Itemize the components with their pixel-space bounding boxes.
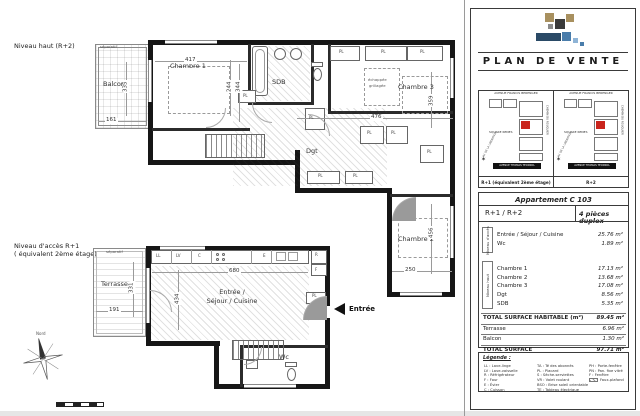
- street-label-left: AV. DE LA LIBERATION: [483, 132, 498, 159]
- wall: [148, 40, 153, 165]
- partition: [390, 194, 453, 197]
- row-area: 17.13 m²: [598, 267, 623, 273]
- window: [450, 58, 454, 98]
- dimension-label: 456: [430, 227, 436, 240]
- closet: [307, 171, 340, 184]
- sink: [274, 48, 286, 60]
- apartment-levels: R+1 / R+2: [485, 210, 522, 217]
- oven: [311, 264, 327, 276]
- room-label: SDB: [272, 79, 286, 86]
- section-label-access: Niveau d'accès: [485, 226, 490, 255]
- map-caption-r1: R+1 (équivalent 2ème étage): [479, 177, 554, 188]
- section-label-haut: Niveau haut: [485, 273, 490, 296]
- placard-label: PL: [243, 94, 248, 98]
- mini-compass-icon: ✶: [481, 157, 486, 163]
- appliance-label: R: [315, 253, 318, 257]
- table-row: Chambre 1 17.13 m²: [497, 267, 623, 273]
- title-rule-bottom: [478, 70, 628, 71]
- counter-divider: [251, 250, 252, 264]
- row-area: 13.68 m²: [598, 276, 623, 282]
- row-area: 1.89 m²: [601, 242, 623, 248]
- square-label: SQUARE RENES: [564, 131, 587, 134]
- window: [400, 292, 442, 296]
- apartment-type: 4 pièces duplex: [579, 211, 628, 224]
- table-rule: [479, 205, 628, 206]
- table-row: Chambre 3 17.08 m²: [497, 284, 623, 290]
- row-name: SDB: [497, 302, 509, 308]
- row-area: 8.56 m²: [601, 293, 623, 299]
- counter-divider: [271, 250, 272, 264]
- table-row: Entrée / Séjour / Cuisine 25.76 m²: [497, 233, 623, 239]
- section-rows-access: Entrée / Séjour / Cuisine 25.76 m² Wc 1.…: [497, 233, 623, 250]
- toilet-tank: [311, 62, 323, 67]
- site-maps-box: AVENUE FRANCIS BERENGER AV. DE LA LIBERA…: [478, 90, 629, 188]
- total-row: Balcon 1.30 m²: [481, 334, 626, 345]
- row-area: 25.76 m²: [598, 233, 623, 239]
- legend-column-3: PH : Porte-fenêtrePN : Pan. fixe vitréF …: [589, 364, 624, 383]
- map-building: [594, 137, 618, 151]
- placard-label: PL: [367, 131, 372, 135]
- street-label-left: AV. DE LA LIBERATION: [558, 132, 573, 159]
- legend-entry: BSO : Brise soleil orientable: [537, 383, 588, 388]
- room-label: Chambre 1: [170, 63, 206, 70]
- placard-label: PL: [427, 150, 432, 154]
- site-map-r1: AVENUE FRANCIS BERENGER AV. DE LA LIBERA…: [479, 91, 553, 176]
- entrance-label: Entrée: [349, 306, 375, 313]
- wall: [387, 192, 392, 294]
- table-row: Wc 1.89 m²: [497, 242, 623, 248]
- bed-outline: [402, 76, 448, 114]
- window: [450, 206, 454, 258]
- entrance-arrow-icon: [334, 303, 345, 315]
- lower-level-label-line2: ( équivalent 2ème étage): [14, 250, 97, 258]
- logo-band: [536, 33, 561, 41]
- sejour-label-line1: Entrée /: [196, 288, 268, 297]
- kitchen-sink: [276, 252, 286, 261]
- bed-outline: [168, 66, 230, 114]
- logo-square: [580, 42, 584, 46]
- row-name: Dgt: [497, 293, 507, 299]
- logo-square: [548, 24, 553, 29]
- placard-label: PL: [353, 174, 358, 178]
- fridge: [311, 250, 327, 264]
- street-label-top: AVENUE FRANCIS BERENGER: [554, 92, 628, 95]
- totals-rows: TOTAL SURFACE HABITABLE (m²) 89.45 m² Te…: [481, 313, 626, 355]
- appliance-label: LV: [176, 254, 181, 258]
- appliance-label: C: [198, 254, 201, 258]
- street-label-bottom: AVENUE THOMAS TECKNOL: [568, 163, 616, 169]
- lower-level-label: Niveau d'accès R+1 ( équivalent 2ème éta…: [14, 242, 97, 259]
- street-label-top: AVENUE FRANCIS BERENGER: [479, 92, 553, 95]
- stove-burner: [216, 258, 219, 261]
- table-row: Chambre 2 13.68 m²: [497, 276, 623, 282]
- counter-divider: [171, 250, 172, 264]
- row-name: Chambre 1: [497, 267, 527, 273]
- table-row: Dgt 8.56 m²: [497, 293, 623, 299]
- row-name: Wc: [497, 242, 505, 248]
- closet: [365, 46, 407, 61]
- placard-label: PL: [339, 50, 344, 54]
- terrace-rail: [96, 251, 143, 334]
- dimension-label: 244: [228, 81, 234, 94]
- stove-burner: [222, 258, 225, 261]
- section-label-box: Niveau d'accès: [482, 227, 493, 253]
- placard-label: PL: [381, 50, 386, 54]
- total-row: TOTAL SURFACE HABITABLE (m²) 89.45 m²: [481, 313, 626, 324]
- dimension-label: 434: [176, 293, 182, 306]
- map-building: [594, 153, 618, 161]
- stove-burner: [216, 253, 219, 256]
- total-label: TOTAL SURFACE HABITABLE (m²): [483, 316, 583, 322]
- map-captions: R+1 (équivalent 2ème étage) R+2: [479, 176, 628, 188]
- mini-compass-icon: ✶: [556, 157, 561, 163]
- placard-label: PL: [420, 50, 425, 54]
- toilet-bowl: [313, 68, 322, 81]
- street-label-bottom: AVENUE THOMAS TECKNOL: [493, 163, 541, 169]
- door-arc: [206, 108, 226, 128]
- toilet-bowl: [287, 368, 296, 381]
- compass-icon: [18, 332, 69, 386]
- placard-label: PL: [391, 131, 396, 135]
- closet: [386, 126, 408, 144]
- total-label: Terrasse: [483, 327, 506, 333]
- site-map-r2: AVENUE FRANCIS BERENGER AV. DE LA LIBERA…: [554, 91, 628, 176]
- square-label: SQUARE RENES: [489, 131, 512, 134]
- logo-square: [562, 32, 571, 41]
- appliance-label: F: [315, 268, 317, 272]
- logo-square: [573, 38, 578, 43]
- logo-square: [555, 19, 565, 29]
- placard-label: PL: [318, 174, 323, 178]
- sejour-label-line2: Séjour / Cuisine: [196, 297, 268, 306]
- closet: [420, 145, 444, 163]
- placard-label: PL: [312, 294, 317, 298]
- room-label: Dgt: [306, 148, 318, 155]
- total-value: 89.45 m²: [597, 316, 624, 322]
- total-row: Terrasse 6.96 m²: [481, 324, 626, 335]
- annotation-label: grillagée: [369, 84, 386, 88]
- closet: [345, 171, 373, 184]
- dimension-label: 417: [184, 58, 197, 64]
- title-rule-top: [478, 52, 628, 53]
- door-arc: [392, 197, 416, 221]
- dimension-label: 161: [105, 118, 118, 124]
- street-label-right: CHEMIN DU ROUQUIER: [620, 105, 623, 135]
- dimension-label: 680: [228, 269, 241, 275]
- map-caption-r2: R+2: [554, 177, 628, 188]
- sheet-bottom-edge: [0, 411, 640, 416]
- room-label: Wc: [279, 354, 289, 361]
- closet: [407, 46, 443, 61]
- placard-label: PL: [309, 116, 314, 120]
- legend-column-2: TA : Té des abonnésPL : PlacardS : Sèche…: [537, 364, 588, 392]
- upper-level-label: Niveau haut (R+2): [14, 42, 75, 50]
- legend-entry: Faux-plafond: [589, 378, 624, 383]
- dimension-label: 476: [370, 115, 383, 121]
- highlighted-unit: [596, 121, 605, 129]
- annotation-label: séparatif: [100, 45, 117, 49]
- kitchen-sink: [288, 252, 298, 261]
- room-label: Terrasse: [101, 281, 128, 288]
- dimension-label: 344: [237, 81, 243, 94]
- map-building: [594, 101, 618, 117]
- appliance-label: LL: [156, 254, 160, 258]
- annotation-label: séparatif: [106, 250, 123, 254]
- counter-divider: [191, 250, 192, 264]
- total-label: Balcon: [483, 337, 502, 343]
- row-area: 17.08 m²: [598, 284, 623, 290]
- plan-de-vente-sheet: Niveau haut (R+2): [0, 0, 640, 416]
- panel-title: PLAN DE VENTE: [478, 56, 628, 67]
- legend-entry: TE : Tableau électrique: [537, 388, 588, 393]
- dimension-label: 359: [430, 95, 436, 108]
- map-building: [503, 99, 517, 108]
- dimension-label: 331: [130, 282, 136, 295]
- lower-level-label-line1: Niveau d'accès R+1: [14, 242, 97, 250]
- map-building: [564, 99, 577, 108]
- section-rows-haut: Chambre 1 17.13 m² Chambre 2 13.68 m² Ch…: [497, 267, 623, 310]
- row-name: Chambre 2: [497, 276, 527, 282]
- map-building: [519, 101, 543, 117]
- stairs-upper: [205, 134, 265, 158]
- street-label-right: CHEMIN DU ROUQUIER: [545, 105, 548, 135]
- table-divider: [575, 205, 576, 221]
- balcony-door: [148, 60, 152, 102]
- apartment-table: Appartement C 103 R+1 / R+2 4 pièces dup…: [478, 192, 629, 348]
- scale-bar: [56, 402, 104, 407]
- wall: [214, 341, 219, 389]
- table-rule: [479, 221, 628, 222]
- row-name: Chambre 3: [497, 284, 527, 290]
- logo-square: [545, 13, 554, 22]
- total-value: 6.96 m²: [602, 327, 624, 333]
- closet: [330, 46, 360, 61]
- wall: [295, 188, 392, 193]
- row-name: Entrée / Séjour / Cuisine: [497, 233, 563, 239]
- dimension-label: 191: [108, 308, 121, 314]
- section-label-box: Niveau haut: [482, 261, 493, 309]
- highlighted-unit: [521, 121, 530, 129]
- door-arc: [244, 347, 262, 365]
- room-label-sejour: Entrée / Séjour / Cuisine: [196, 288, 268, 306]
- legend-column-1: LL : Lave-lingeLV : Lave-vaisselleR : Ré…: [484, 364, 518, 392]
- apartment-title: Appartement C 103: [479, 196, 628, 204]
- counter-divider: [211, 250, 212, 264]
- closet: [360, 126, 384, 144]
- stove-burner: [222, 253, 225, 256]
- dimension-label: 250: [404, 268, 417, 274]
- annotation-label: échappée: [368, 78, 387, 82]
- appliance-label: E: [263, 254, 266, 258]
- sheet-divider-line: [464, 0, 465, 416]
- dim-line: [392, 271, 452, 272]
- window: [244, 384, 296, 388]
- window: [165, 40, 217, 44]
- total-value: 1.30 m²: [602, 337, 624, 343]
- wall: [325, 318, 330, 389]
- dim-line: [239, 64, 240, 122]
- toilet-tank: [285, 362, 297, 367]
- map-building: [578, 99, 592, 108]
- legend-entry: C : Cuisson: [484, 388, 518, 393]
- sink: [290, 48, 302, 60]
- table-row: SDB 5.35 m²: [497, 302, 623, 308]
- bathtub-inner: [255, 49, 265, 93]
- map-building: [519, 137, 543, 151]
- map-building: [519, 153, 543, 161]
- dimension-label: 335: [124, 81, 130, 94]
- logo-square: [566, 14, 574, 22]
- room-label: Chambre 3: [398, 84, 434, 91]
- legend-title: Légende :: [483, 356, 511, 361]
- map-building: [489, 99, 502, 108]
- legend-box: Légende : LL : Lave-lingeLV : Lave-vaiss…: [478, 352, 629, 392]
- wall: [146, 341, 220, 346]
- row-area: 5.35 m²: [601, 302, 623, 308]
